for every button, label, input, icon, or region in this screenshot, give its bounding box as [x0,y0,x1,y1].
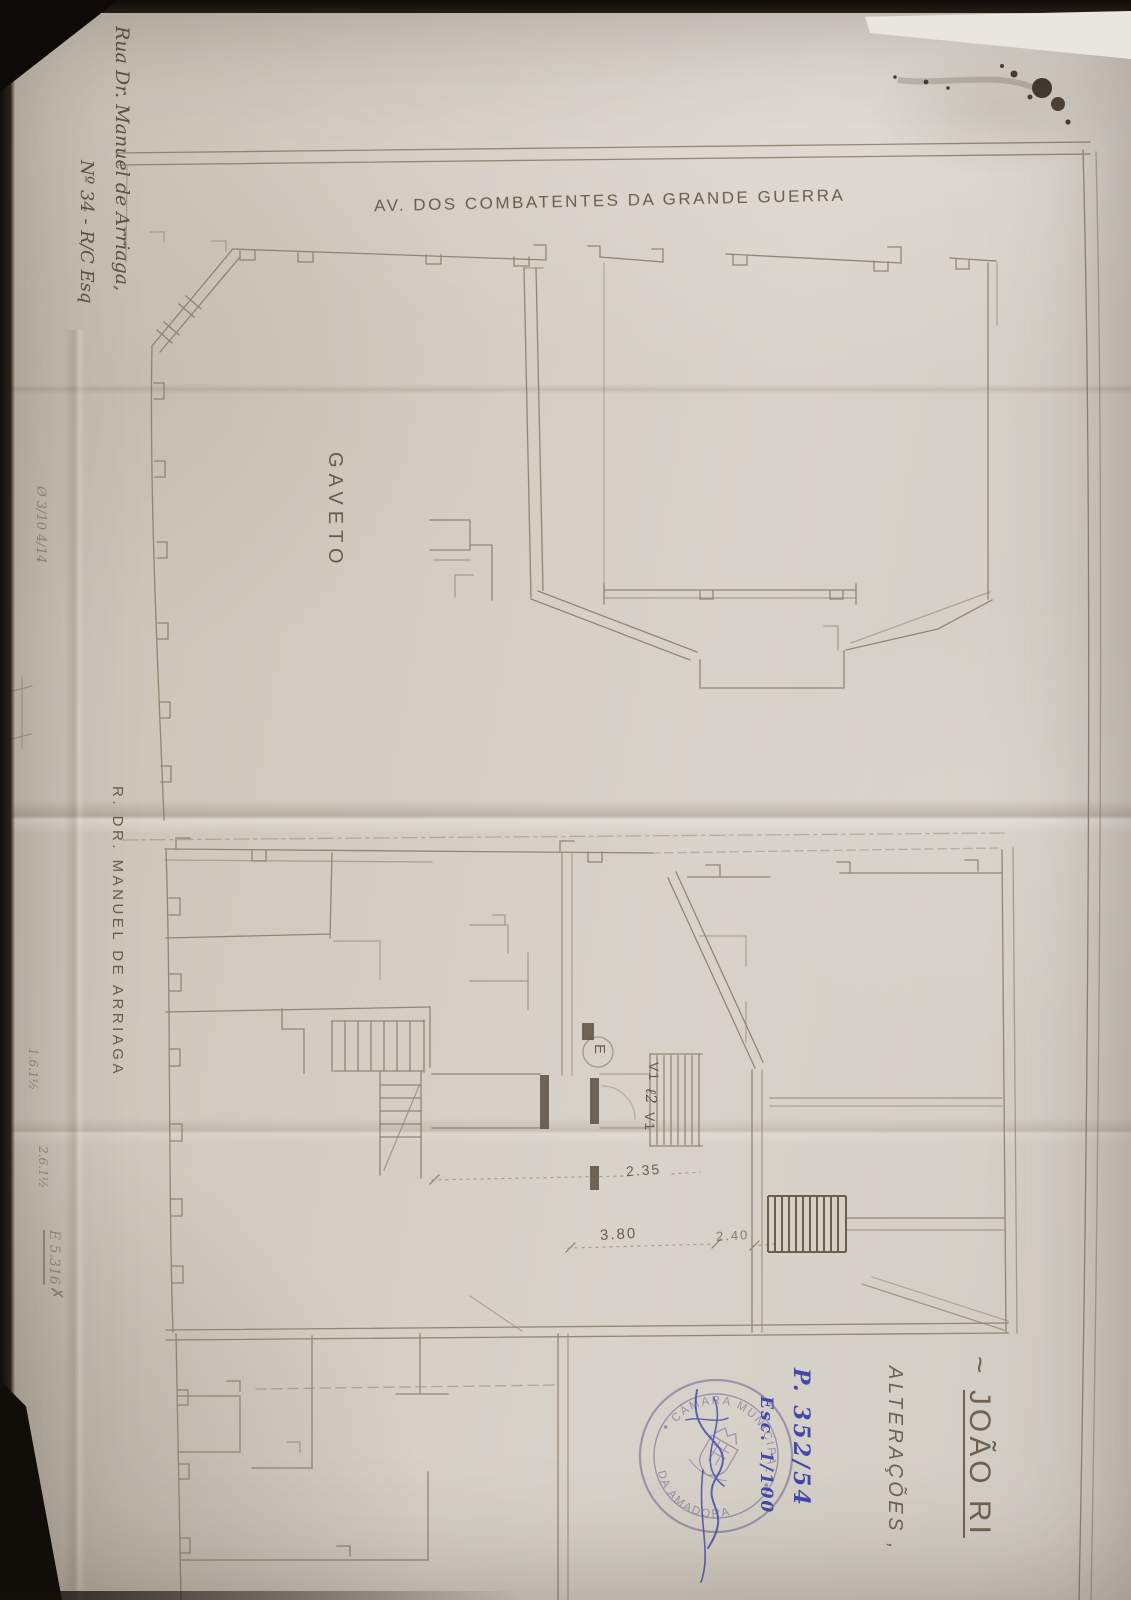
window-label-upper: V1 [646,1062,662,1081]
check-mark: ✗ [46,1286,66,1300]
scale-note: Esc. 1/100 [756,1396,776,1514]
stamp-arc-bottom: DA AMADORA [645,1465,737,1535]
margin-note-left: Ø 3/10 4/14 [33,486,48,563]
owner-title: ~ JOÃO RI [962,1356,996,1538]
signature-scrawl [686,1390,728,1582]
svg-text:DA AMADORA: DA AMADORA [645,1465,737,1535]
margin-note-bottom-1: 1.6.1½ [26,1048,40,1090]
address-line-2: Nº 34 - R/C Esq [76,160,97,303]
owner-title-tilde: ~ [963,1356,996,1390]
plan-linework [12,142,1101,1600]
dimension-left-span: 3.80 [600,1225,638,1244]
svg-text:CÂMARA MUNICIPAL: CÂMARA MUNICIPAL [668,1373,799,1479]
address-line-1: Rua Dr. Manuel de Arriaga, [111,26,133,291]
dimension-entry-hall: 2.35 [625,1161,661,1179]
process-number: P. 352/54 [788,1368,814,1508]
margin-note-bottom-2: 2.6.1½ [36,1146,50,1188]
corner-block-label: GAVETO [323,452,346,570]
window-label-lower: V1 [642,1112,658,1131]
ink-blots [893,64,1070,125]
dimension-right-span: 2.40 [716,1227,750,1244]
stamp-arc-top: CÂMARA MUNICIPAL [668,1373,799,1479]
scanned-floor-plan-page: CÂMARA MUNICIPAL DA AMADORA AV. DOS COMB [0,0,1131,1600]
margin-note-bottom-3: E 5.316 [46,1230,62,1285]
light-shaft-label: ℓ2 [641,1088,660,1104]
street-left-label: R. DR. MANUEL DE ARRIAGA [109,786,126,1077]
alterations-label: ALTERAÇÕES , [883,1366,906,1552]
hatched-stair [768,1196,846,1252]
entry-label: E [591,1044,608,1057]
owner-title-name: JOÃO RI [963,1390,996,1538]
